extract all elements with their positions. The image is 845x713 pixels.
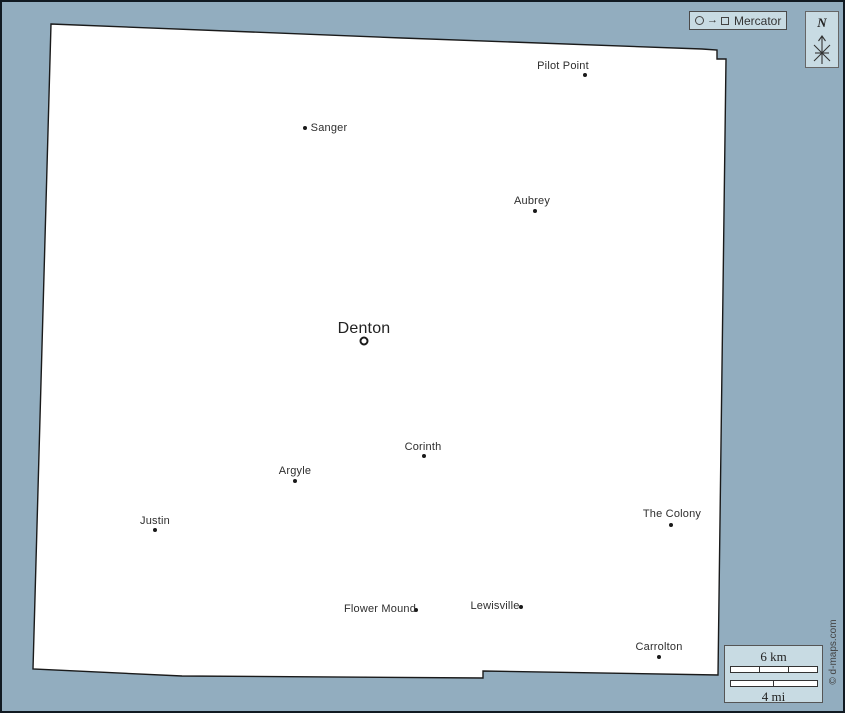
city-label: Pilot Point (537, 60, 589, 72)
scale-km-label: 6 km (725, 650, 822, 663)
county-outline (2, 2, 845, 713)
city-label: The Colony (643, 508, 701, 520)
north-label: N (817, 15, 826, 31)
scale-mi-label: 4 mi (725, 690, 822, 703)
city-marker (657, 655, 661, 659)
city-label: Corinth (405, 441, 442, 453)
flat-square-icon (721, 17, 729, 25)
city-marker (293, 479, 297, 483)
city-label: Flower Mound (344, 603, 416, 615)
city-marker (422, 454, 426, 458)
globe-circle-icon (695, 16, 704, 25)
arrow-right-icon: → (707, 15, 718, 26)
city-label: Sanger (311, 122, 348, 134)
city-label: Denton (338, 320, 391, 338)
city-label: Lewisville (470, 600, 519, 612)
scale-bar: 6 km 4 mi (724, 645, 823, 703)
compass-rose: N (805, 11, 839, 68)
map-canvas: Pilot PointSangerAubreyDentonCorinthArgy… (0, 0, 845, 713)
city-marker (519, 605, 523, 609)
city-label: Aubrey (514, 195, 550, 207)
scale-km-bar (730, 666, 818, 673)
projection-legend: → Mercator (689, 11, 787, 30)
city-marker (583, 73, 587, 77)
city-marker (669, 523, 673, 527)
city-marker (303, 126, 307, 130)
city-marker (153, 528, 157, 532)
city-label: Argyle (279, 465, 311, 477)
projection-name: Mercator (732, 14, 781, 28)
scale-mi-bar (730, 680, 818, 687)
copyright-watermark: © d-maps.com (828, 602, 840, 702)
city-marker (533, 209, 537, 213)
city-label: Carrolton (635, 641, 682, 653)
city-label: Justin (140, 515, 170, 527)
compass-needle-icon (808, 31, 836, 65)
